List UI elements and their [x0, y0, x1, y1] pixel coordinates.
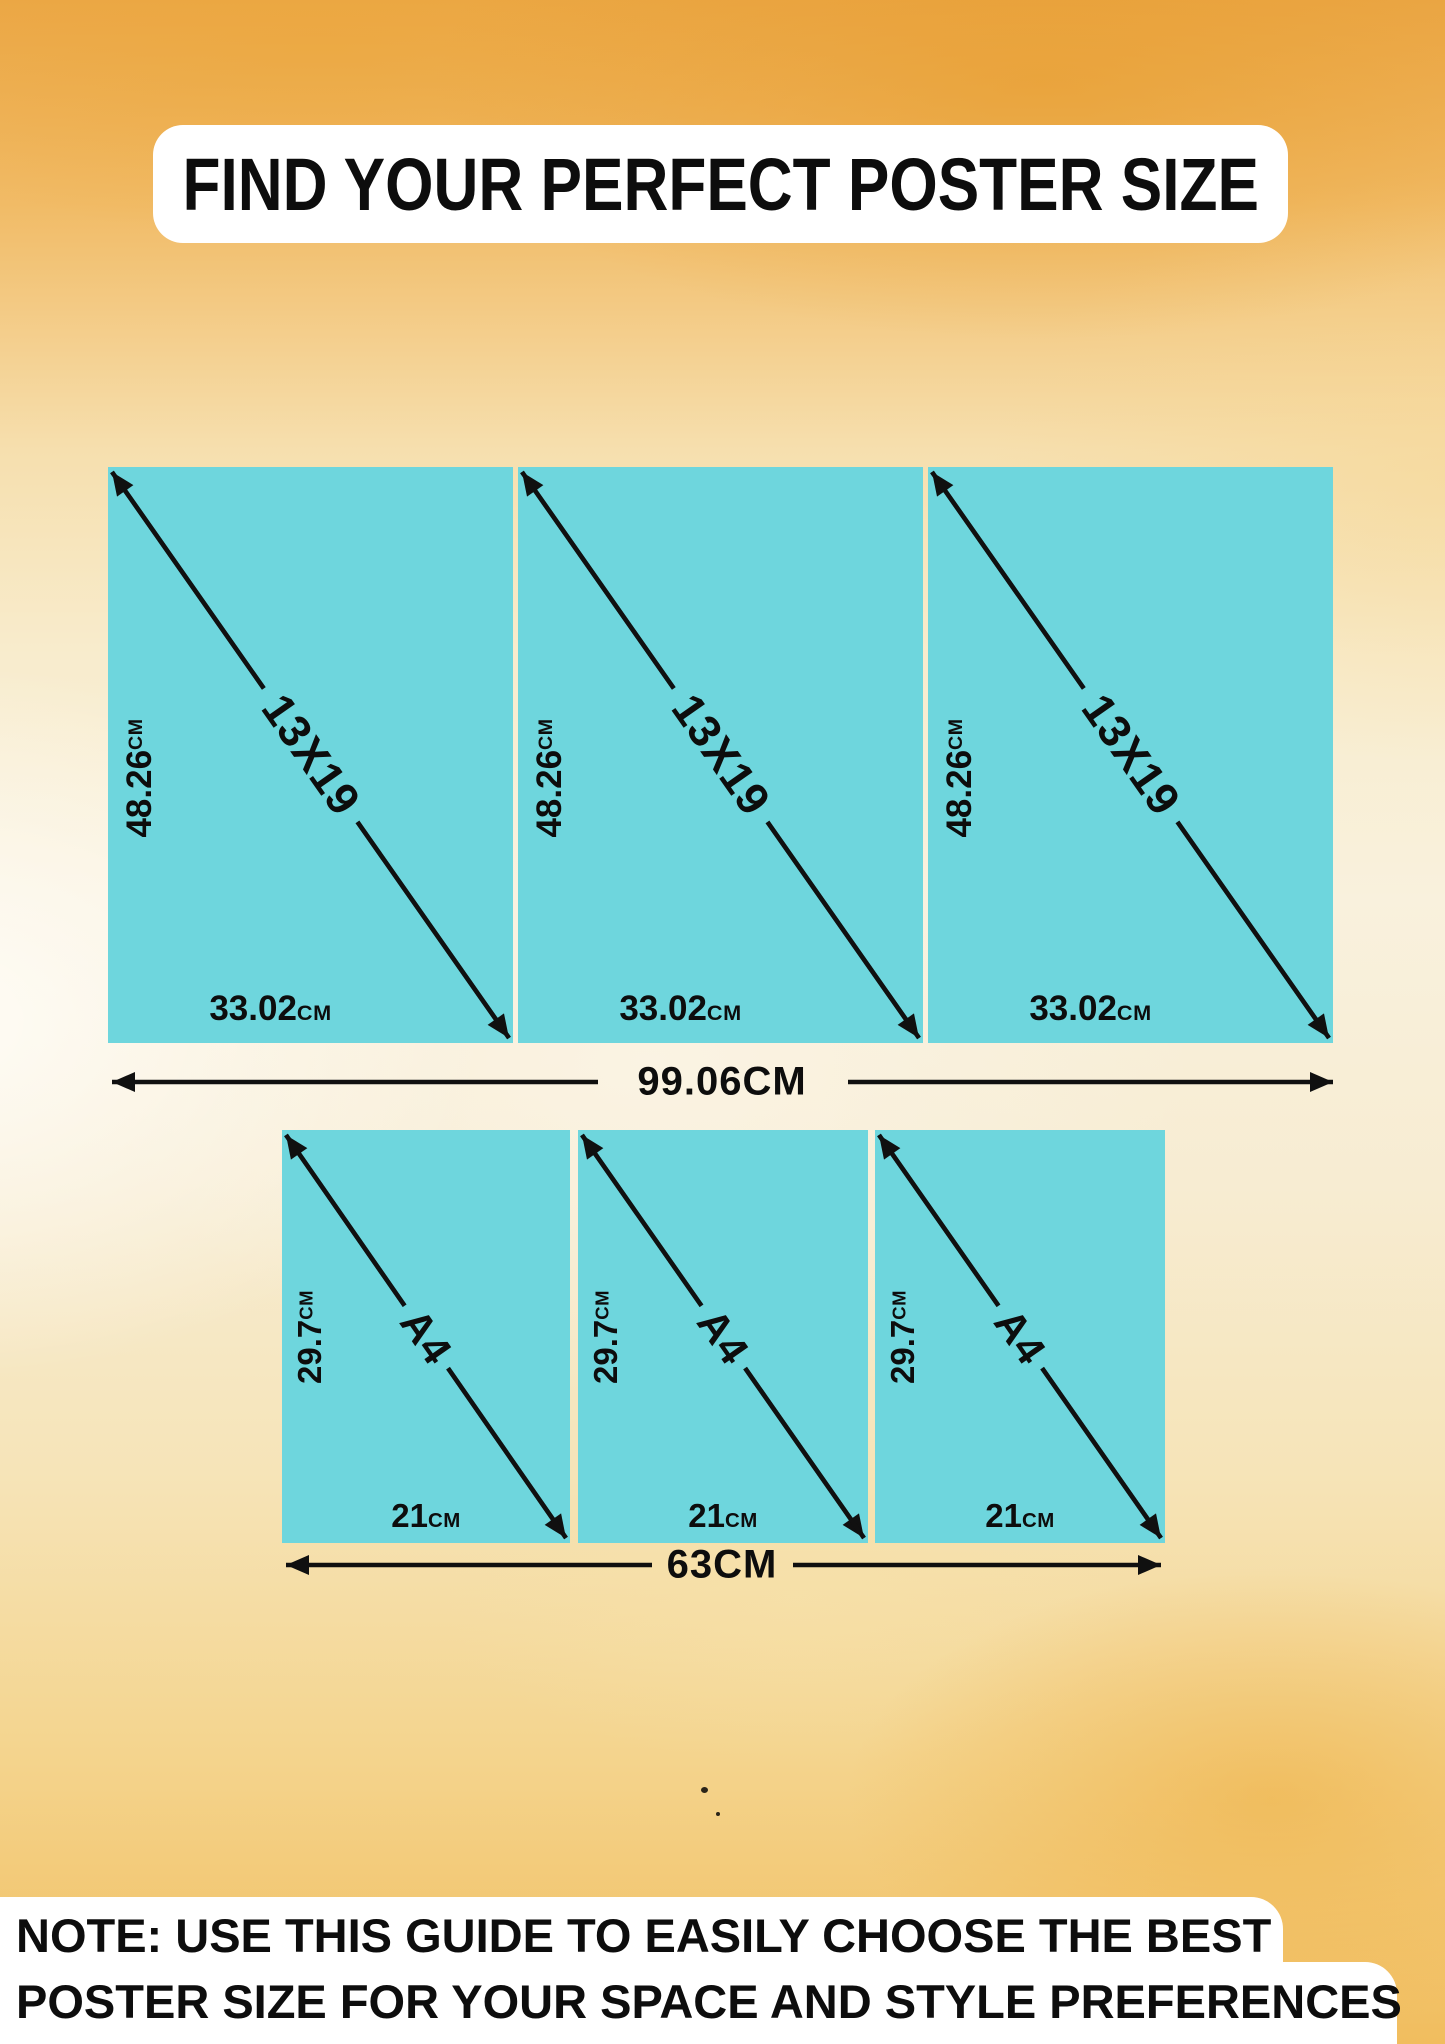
paper-speck	[701, 1787, 708, 1793]
width-label: 33.02CM	[209, 989, 331, 1029]
height-label: 29.7CM	[291, 1290, 329, 1384]
note-text-line2: POSTER SIZE FOR YOUR SPACE AND STYLE PRE…	[16, 1974, 1402, 2029]
width-label: 33.02CM	[619, 989, 741, 1029]
height-label: 48.26CM	[530, 718, 570, 837]
page-title: FIND YOUR PERFECT POSTER SIZE	[182, 142, 1258, 227]
width-label: 21CM	[391, 1497, 461, 1535]
poster-panel-a4-1: A4 29.7CM 21CM	[282, 1130, 570, 1543]
total-width-label: 63CM	[667, 1543, 778, 1588]
poster-panel-13x19-2: 13X19 48.26CM 33.02CM	[518, 467, 923, 1043]
height-label: 29.7CM	[587, 1290, 625, 1384]
total-width-arrow-13x19: 99.06CM	[0, 1060, 1445, 1104]
total-width-label: 99.06CM	[637, 1060, 806, 1105]
title-card: FIND YOUR PERFECT POSTER SIZE	[153, 125, 1288, 243]
height-label: 48.26CM	[940, 718, 980, 837]
width-label: 21CM	[985, 1497, 1055, 1535]
poster-panel-13x19-1: 13X19 48.26CM 33.02CM	[108, 467, 513, 1043]
poster-size-guide: FIND YOUR PERFECT POSTER SIZE 13X19 48.2…	[0, 0, 1445, 2044]
poster-panel-a4-3: A4 29.7CM 21CM	[875, 1130, 1165, 1543]
height-label: 29.7CM	[884, 1290, 922, 1384]
width-label: 33.02CM	[1029, 989, 1151, 1029]
height-label: 48.26CM	[120, 718, 160, 837]
note-text-line1: NOTE: USE THIS GUIDE TO EASILY CHOOSE TH…	[16, 1908, 1271, 1963]
poster-panel-13x19-3: 13X19 48.26CM 33.02CM	[928, 467, 1333, 1043]
poster-panel-a4-2: A4 29.7CM 21CM	[578, 1130, 868, 1543]
total-width-arrow-a4: 63CM	[0, 1543, 1445, 1587]
width-label: 21CM	[688, 1497, 758, 1535]
paper-speck	[716, 1812, 720, 1816]
